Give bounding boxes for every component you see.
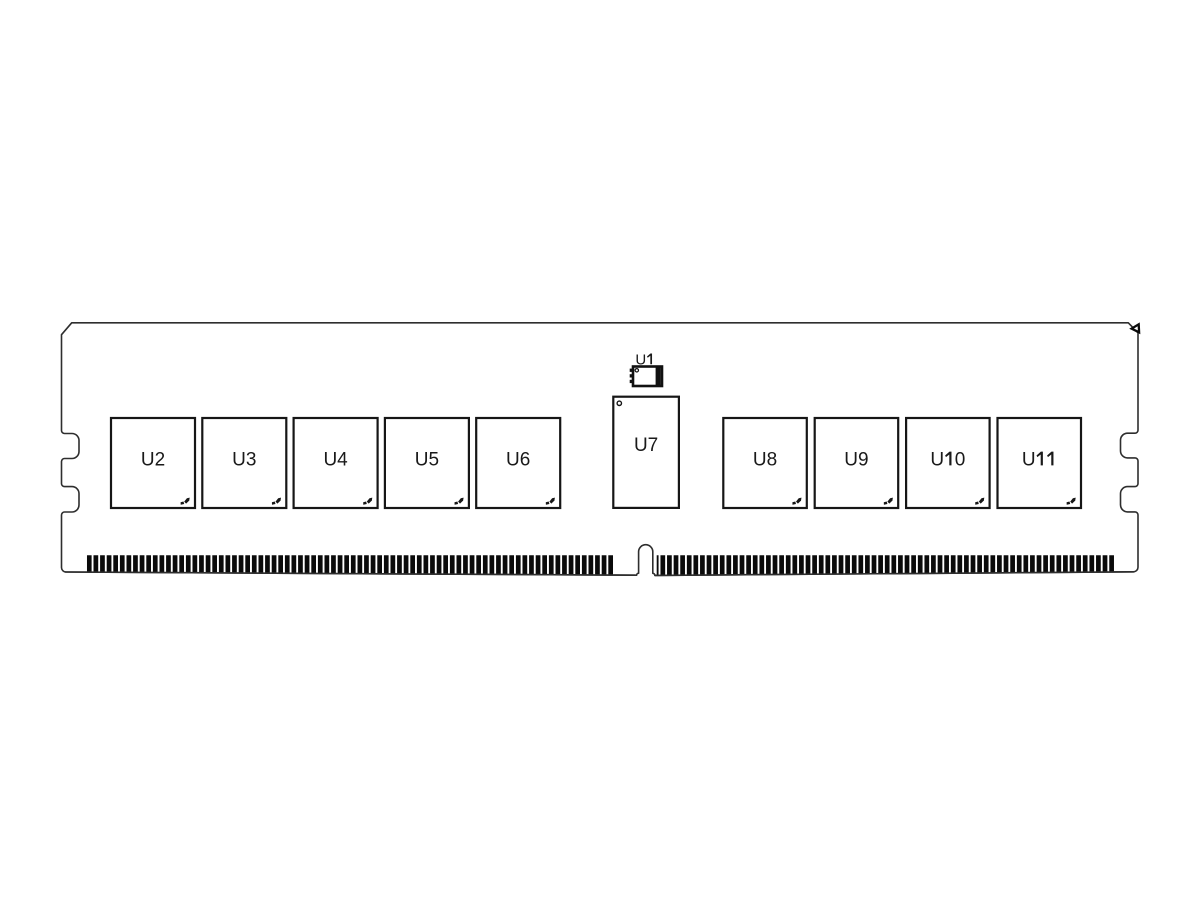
svg-text:3: 3: [246, 449, 257, 470]
svg-text:U: U: [232, 449, 246, 470]
svg-text:2: 2: [155, 449, 166, 470]
svg-text:U: U: [930, 449, 944, 470]
svg-text:5: 5: [428, 449, 439, 470]
svg-text:0: 0: [955, 449, 966, 470]
svg-text:U: U: [415, 449, 429, 470]
svg-text:8: 8: [767, 449, 778, 470]
svg-text:6: 6: [520, 449, 531, 470]
svg-text:4: 4: [337, 449, 348, 470]
svg-text:U: U: [506, 449, 520, 470]
svg-text:U7: U7: [634, 435, 658, 456]
svg-text:9: 9: [858, 449, 869, 470]
svg-text:U: U: [323, 449, 337, 470]
svg-text:U: U: [844, 449, 858, 470]
svg-text:U: U: [1022, 449, 1036, 470]
svg-text:U: U: [141, 449, 155, 470]
svg-text:U: U: [753, 449, 767, 470]
